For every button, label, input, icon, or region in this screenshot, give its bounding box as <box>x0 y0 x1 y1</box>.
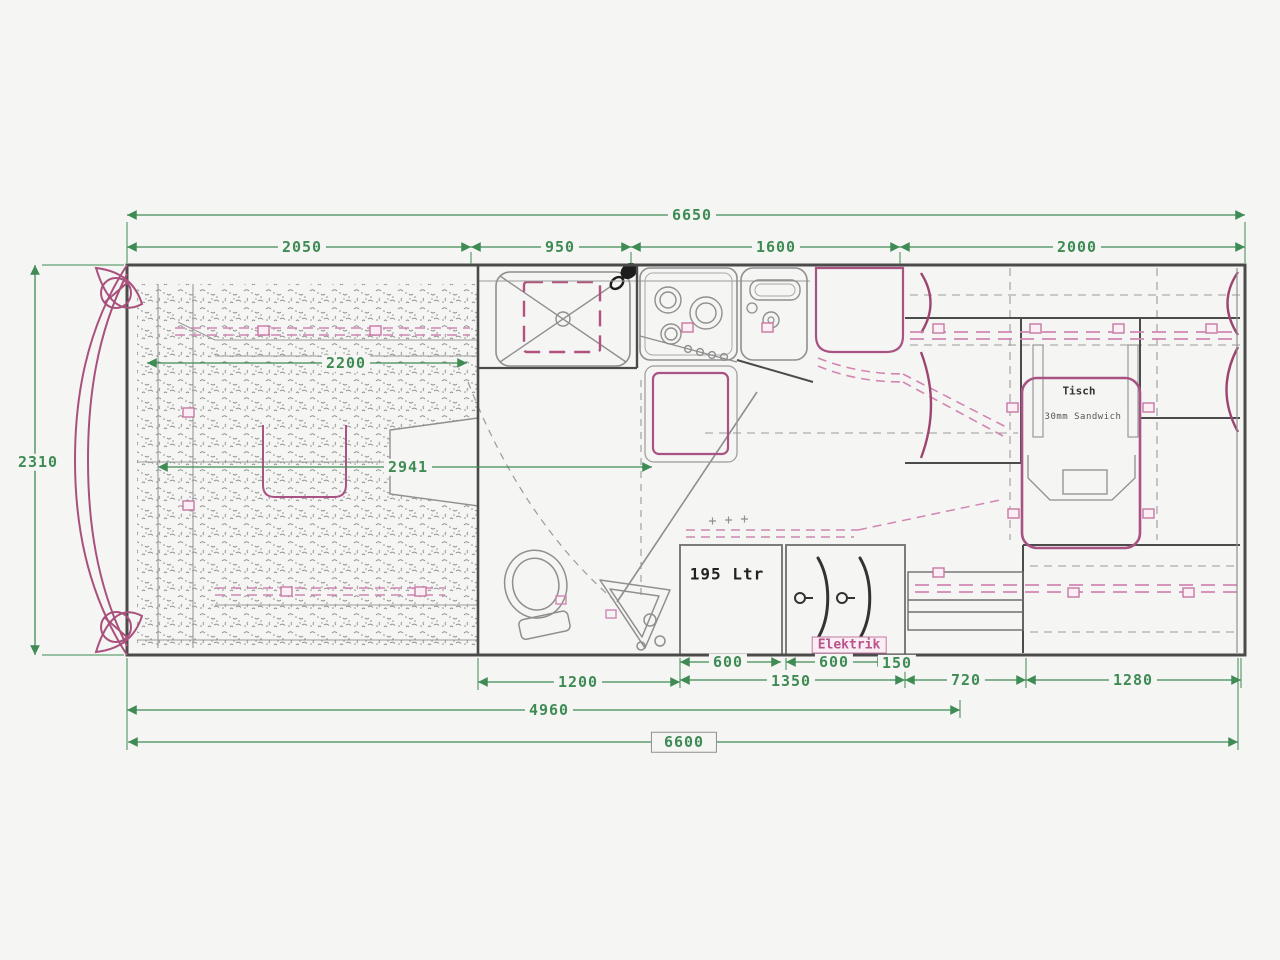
dim-overall-top: 6650 <box>668 207 716 224</box>
dim-rear-bench: 1280 <box>1109 672 1157 689</box>
hanger-icons <box>818 558 870 638</box>
water-tank-label: 195 Ltr <box>690 565 764 584</box>
dim-overall-width: 2310 <box>14 454 62 471</box>
dim-interior-span: 2941 <box>384 459 432 476</box>
dim-tank-wardrobe-total: 1350 <box>767 673 815 690</box>
dim-wardrobe-width: 600 <box>815 654 853 671</box>
table-label: Tisch <box>1062 385 1095 398</box>
dim-rear-bed: 2050 <box>278 239 326 256</box>
floorplan-canvas: 6650 2050 950 1600 2000 2310 2200 2941 6… <box>0 0 1280 960</box>
dim-overall-bottom: 6600 <box>651 732 717 753</box>
dim-bed-length: 2200 <box>322 355 370 372</box>
dim-kitchen: 1600 <box>752 239 800 256</box>
dim-gap-width: 150 <box>878 655 916 672</box>
table <box>1022 345 1140 548</box>
dim-tank-width: 600 <box>709 654 747 671</box>
floorplan-drawing <box>0 0 1280 960</box>
dim-drawer-unit: 720 <box>947 672 985 689</box>
electrics-label: Elektrik <box>812 637 887 654</box>
dim-dinette: 2000 <box>1053 239 1101 256</box>
table-note-label: 30mm Sandwich <box>1045 412 1122 422</box>
dim-bathroom: 950 <box>541 239 579 256</box>
dim-rear-section: 4960 <box>525 702 573 719</box>
dim-bathroom-floor: 1200 <box>554 674 602 691</box>
